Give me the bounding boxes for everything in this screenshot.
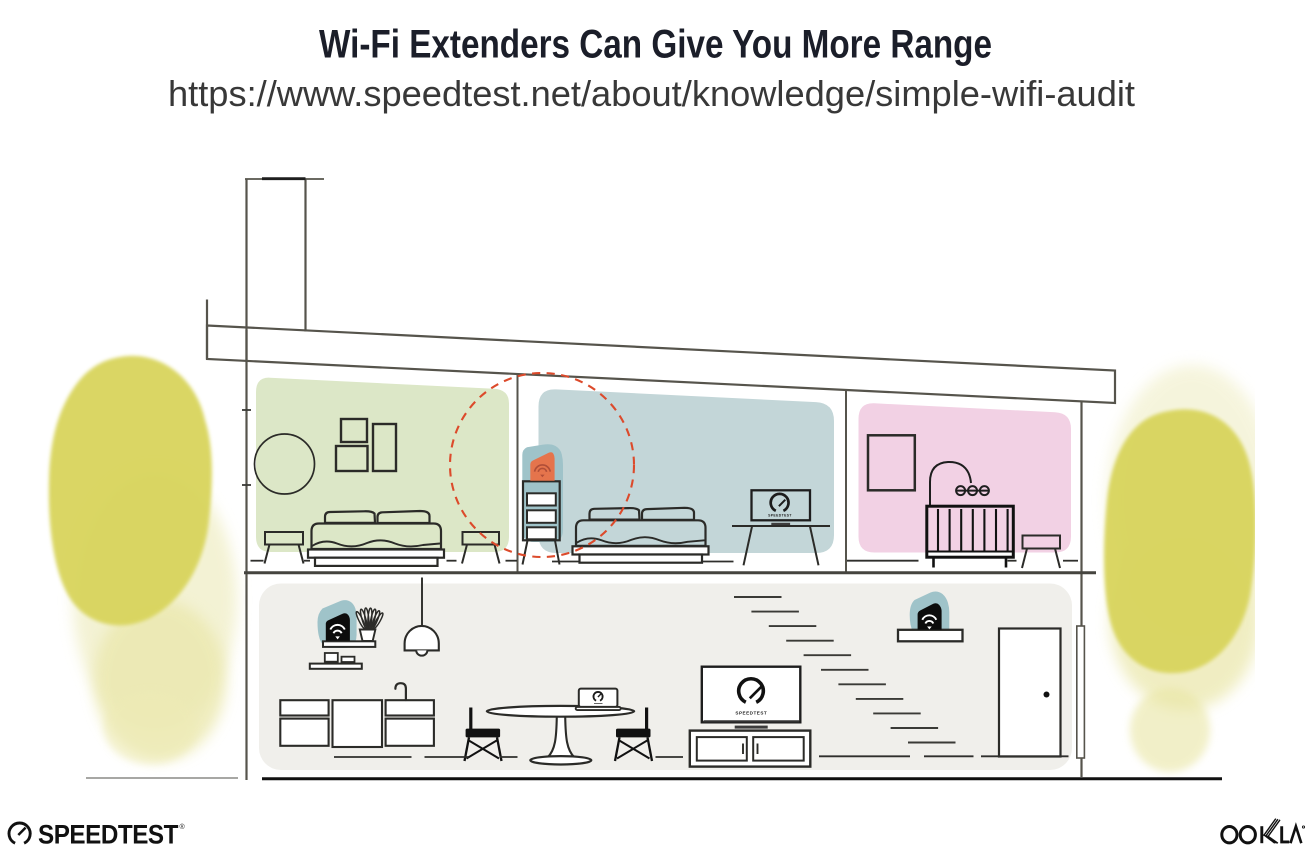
svg-text:SPEEDTEST: SPEEDTEST — [768, 513, 792, 517]
svg-text:https://www.speedtest.net/abou: https://www.speedtest.net/about/knowledg… — [168, 73, 1135, 114]
svg-text:SPEEDTEST: SPEEDTEST — [38, 820, 178, 850]
svg-text:SPEEDTEST: SPEEDTEST — [735, 711, 767, 716]
svg-text:®: ® — [180, 823, 186, 831]
svg-text:Wi-Fi Extenders Can Give You M: Wi-Fi Extenders Can Give You More Range — [319, 23, 992, 67]
